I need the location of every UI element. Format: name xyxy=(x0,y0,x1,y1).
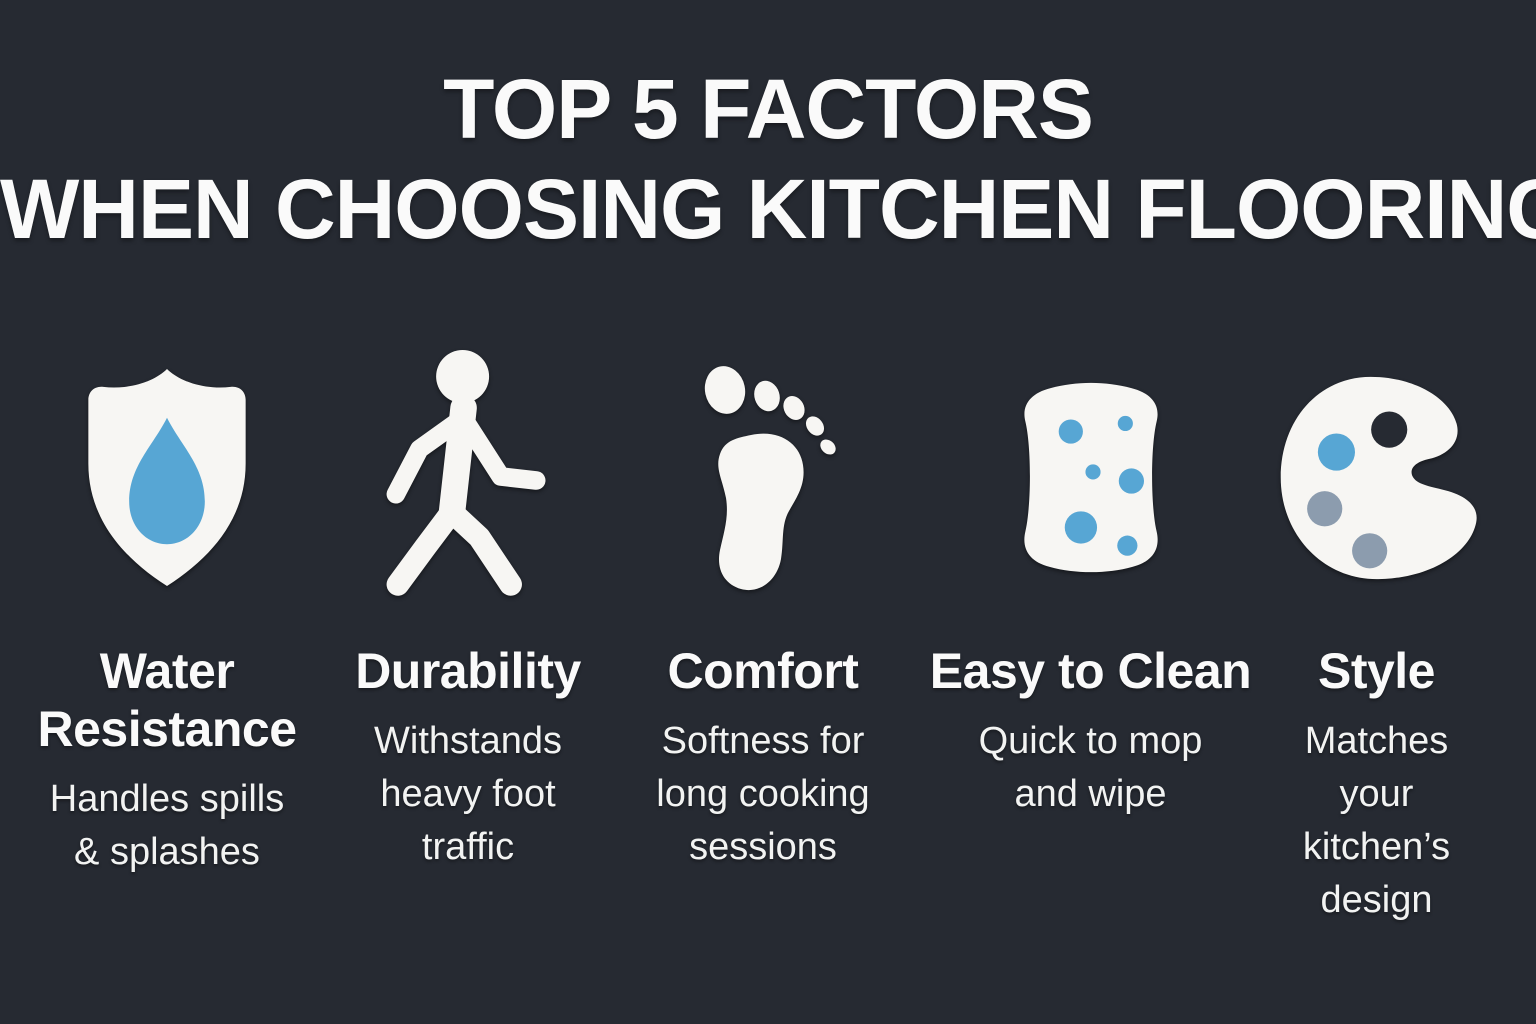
factor-column-style: Style Matches your kitchen’s design xyxy=(1263,338,1530,928)
factor-description: Handles spills & splashes xyxy=(6,773,328,879)
factor-description: Quick to mop and wipe xyxy=(918,715,1263,821)
factor-column-water-resistance: Water Resistance Handles spills & splash… xyxy=(6,338,328,928)
sponge-icon xyxy=(1010,374,1172,581)
factor-description: Softness for long cooking sessions xyxy=(608,715,918,875)
factor-title: Easy to Clean xyxy=(918,642,1263,700)
palette-icon xyxy=(1269,369,1484,586)
title-line-2: WHEN CHOOSING KITCHEN FLOORING xyxy=(0,160,1536,260)
footprint-icon xyxy=(688,358,838,598)
factor-column-comfort: Comfort Softness for long cooking sessio… xyxy=(608,338,918,928)
infographic-title: TOP 5 FACTORS WHEN CHOOSING KITCHEN FLOO… xyxy=(0,60,1536,260)
factor-description: Matches your kitchen’s design xyxy=(1263,715,1490,928)
factor-column-durability: Durability Withstands heavy foot traffic xyxy=(328,338,608,928)
title-line-1: TOP 5 FACTORS xyxy=(0,60,1536,160)
factor-title: Durability xyxy=(328,642,608,700)
factor-title: Style xyxy=(1263,642,1490,700)
palette-thumb-hole xyxy=(1371,412,1407,448)
factor-title: Water Resistance xyxy=(6,642,328,758)
factor-description: Withstands heavy foot traffic xyxy=(328,715,608,875)
factor-title: Comfort xyxy=(608,642,918,700)
factors-row: Water Resistance Handles spills & splash… xyxy=(0,338,1536,928)
shield-water-drop-icon xyxy=(77,366,257,590)
factor-column-easy-to-clean: Easy to Clean Quick to mop and wipe xyxy=(918,338,1263,928)
walking-person-icon xyxy=(382,349,554,607)
